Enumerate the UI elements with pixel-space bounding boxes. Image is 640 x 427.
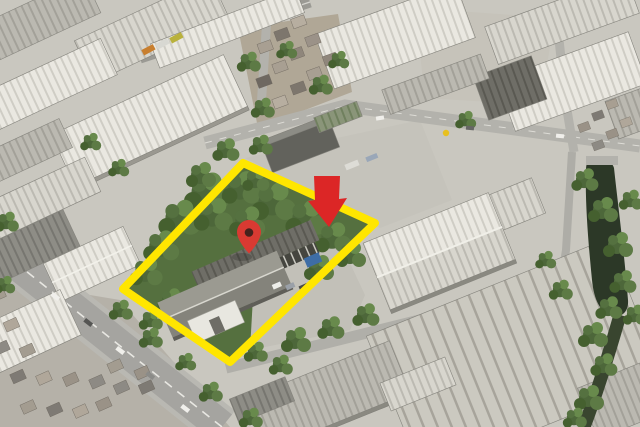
pin-hole [245,228,254,237]
yellow-object [443,130,449,136]
pin-shadow [232,253,252,261]
aerial-photo-stage [0,0,640,427]
aerial-photo [0,0,640,427]
canal-bridge [586,156,618,165]
